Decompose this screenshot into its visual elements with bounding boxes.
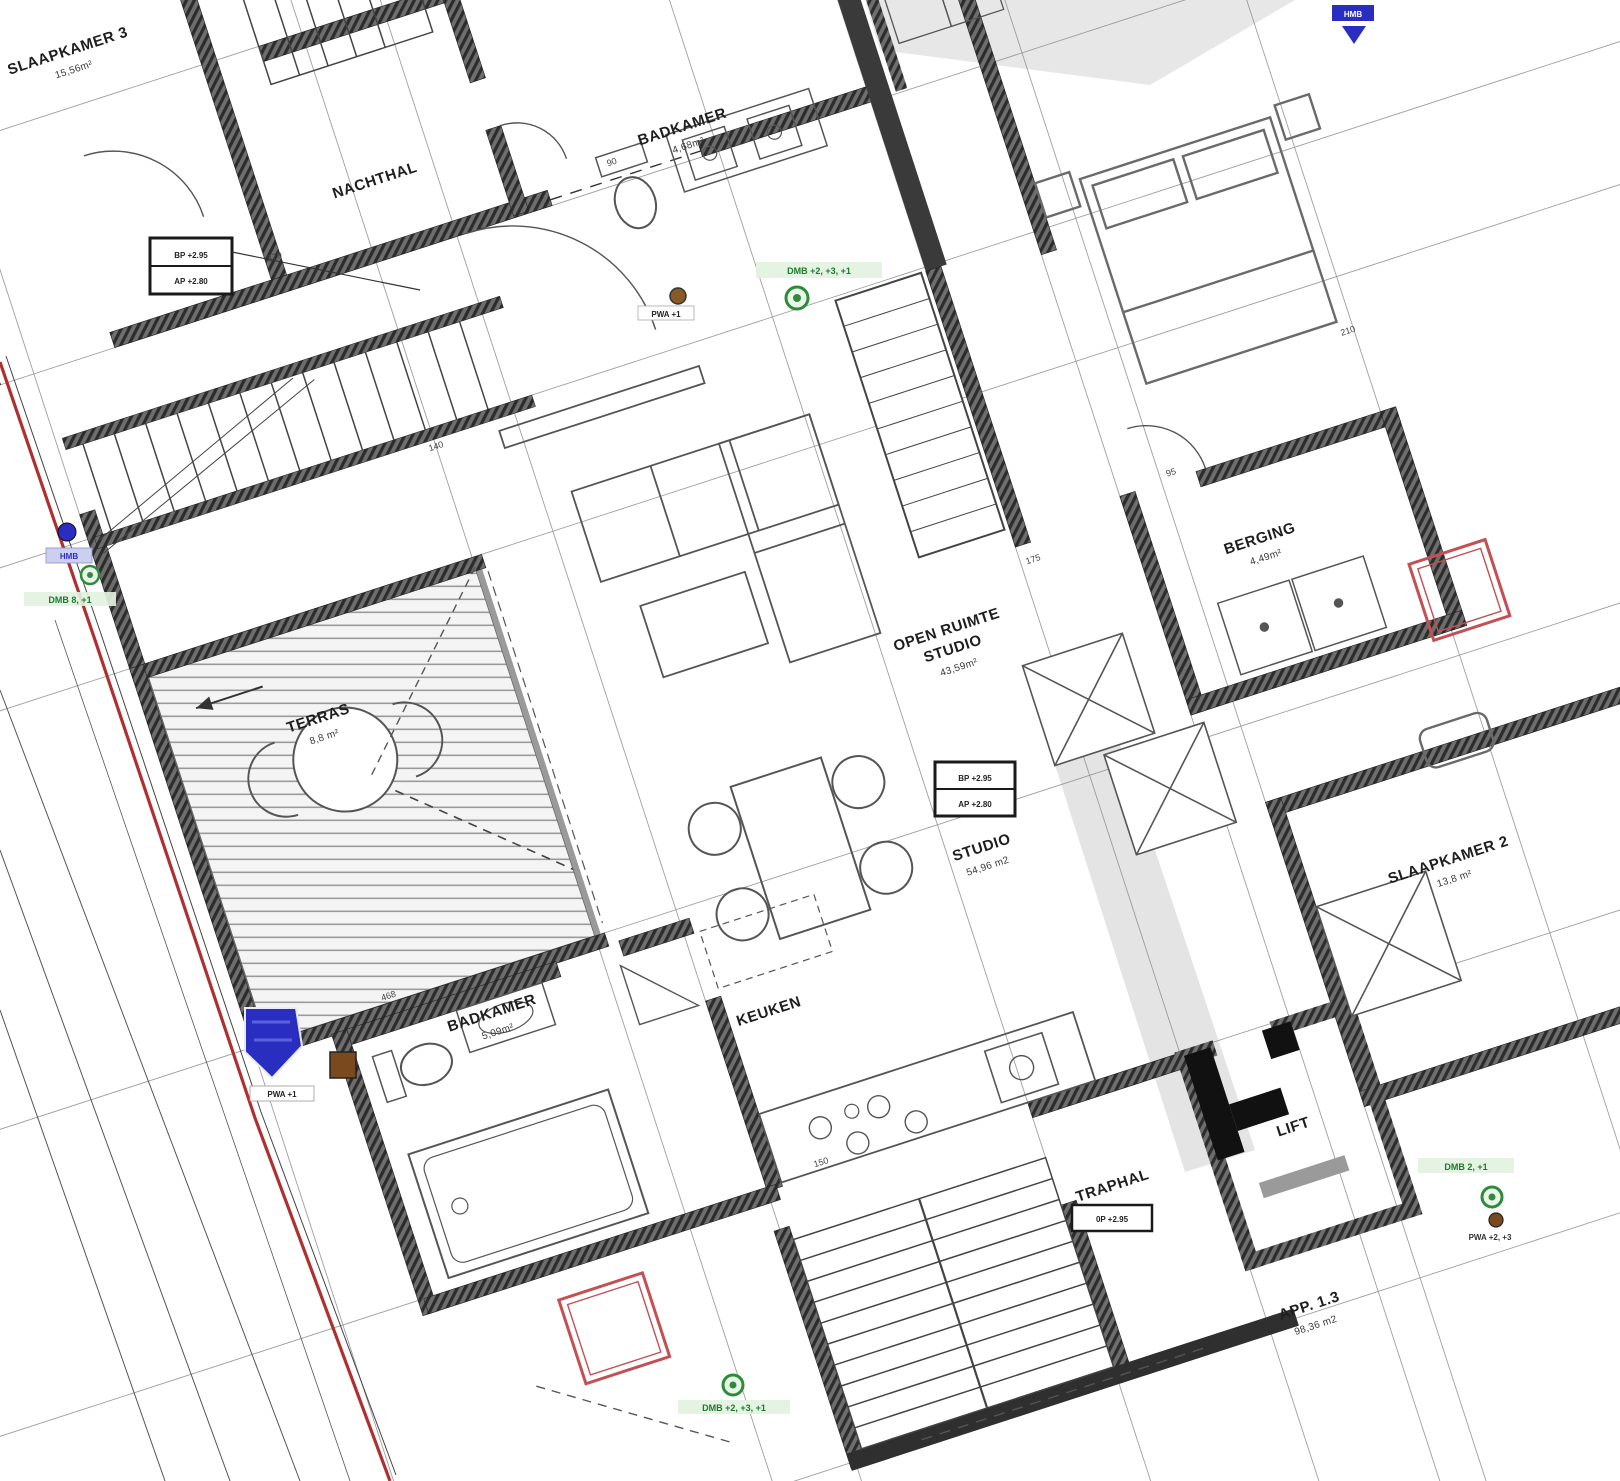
dmb-top-label: DMB +2, +3, +1 [787,266,851,276]
sofa-group [499,338,880,726]
marker-group-bottomcenter: DMB +2, +3, +1 [678,1375,790,1414]
dim-1: 140 [427,439,444,453]
marker-hmb-topright: HMB [1332,5,1374,44]
pwa-bottomleft-label: PWA +1 [267,1090,297,1099]
level-box-2: BP +2.95 AP +2.80 [935,762,1015,816]
floor-plan-drawing: SLAAPKAMER 3 15,56m² NACHTHAL BADKAMER 4… [0,0,1620,1481]
level3-text: 0P +2.95 [1096,1215,1129,1224]
level-box-3: 0P +2.95 [1072,1205,1152,1231]
dining-set [679,741,922,956]
dim-5: 95 [1165,466,1178,479]
dim-0: 90 [605,156,618,169]
hmb-left-label: HMB [60,552,78,561]
hmb-topright-label: HMB [1344,10,1362,19]
level2-bottom: AP +2.80 [958,800,992,809]
label-berging: BERGING [1222,519,1298,558]
level2-top: BP +2.95 [958,774,992,783]
label-keuken: KEUKEN [734,993,803,1030]
label-traphal: TRAPHAL [1074,1166,1151,1206]
dmb-bottom-label: DMB +2, +3, +1 [702,1403,766,1413]
plan-group: SLAAPKAMER 3 15,56m² NACHTHAL BADKAMER 4… [0,0,1620,1481]
level1-bottom: AP +2.80 [174,277,208,286]
label-lift: LIFT [1274,1114,1312,1141]
dmb-left-label: DMB 8, +1 [48,595,91,605]
area-slaapkamer2: 13,8 m² [1436,868,1474,890]
floor-plan-page: SLAAPKAMER 3 15,56m² NACHTHAL BADKAMER 4… [0,0,1620,1481]
marker-group-bottomright: DMB 2, +1 PWA +2, +3 [1418,1158,1514,1242]
roof-shade-top [865,0,1295,85]
label-nachthal: NACHTHAL [330,159,419,202]
dmb-right-label: DMB 2, +1 [1444,1162,1487,1172]
level1-top: BP +2.95 [174,251,208,260]
pwa-top-label: PWA +1 [651,310,681,319]
area-berging: 4,49m² [1249,547,1284,568]
pwa-right-label: PWA +2, +3 [1469,1233,1512,1242]
dim-6: 210 [1339,324,1356,338]
dim-2: 175 [1024,552,1041,566]
